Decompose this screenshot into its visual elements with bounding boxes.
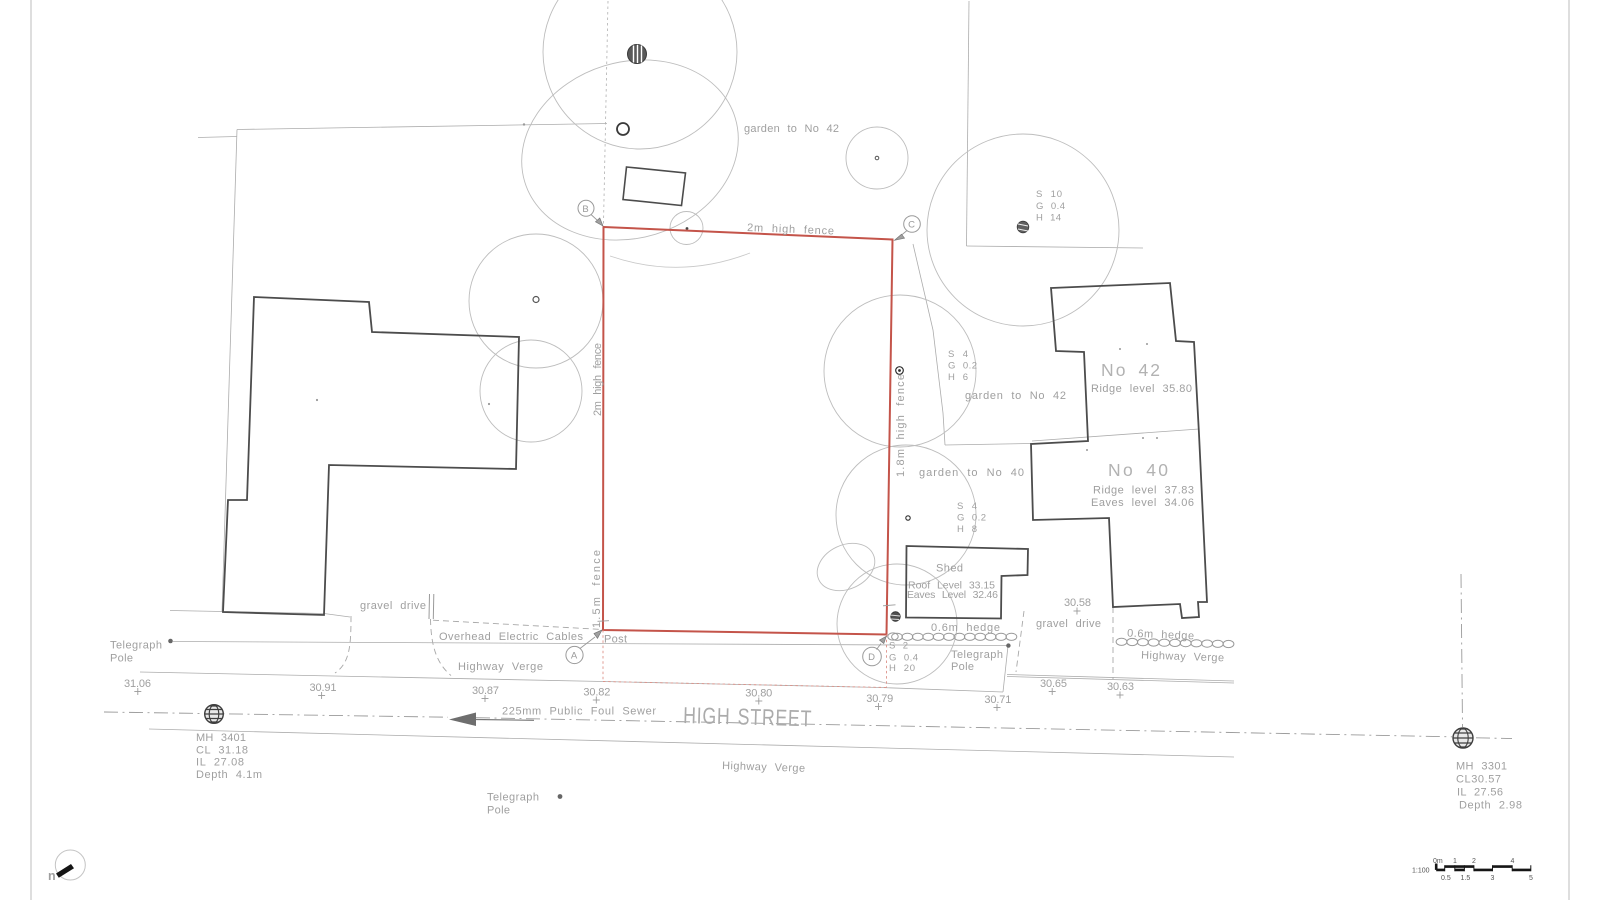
svg-text:30.65: 30.65 (1040, 678, 1068, 690)
svg-text:30.91: 30.91 (310, 682, 338, 694)
svg-text:G 0.2: G 0.2 (957, 513, 987, 524)
svg-text:0.5: 0.5 (1441, 875, 1451, 882)
svg-text:B: B (582, 204, 589, 215)
svg-text:0m: 0m (1433, 858, 1443, 865)
svg-text:CL30.57: CL30.57 (1456, 774, 1502, 786)
svg-text:garden to No 42: garden to No 42 (965, 390, 1067, 402)
svg-text:Overhead Electric Cables: Overhead Electric Cables (439, 631, 584, 643)
svg-text:30.87: 30.87 (472, 685, 500, 697)
svg-text:Pole: Pole (951, 661, 975, 673)
svg-text:1.5m fence: 1.5m fence (591, 549, 603, 628)
svg-text:Pole: Pole (110, 653, 134, 665)
svg-text:IL 27.56: IL 27.56 (1457, 787, 1504, 799)
svg-text:S 4: S 4 (948, 349, 969, 360)
svg-text:Post: Post (604, 634, 628, 646)
svg-text:gravel drive: gravel drive (360, 600, 427, 612)
svg-text:Eaves Level 32.46: Eaves Level 32.46 (907, 589, 999, 601)
svg-text:Telegraph: Telegraph (951, 649, 1004, 661)
svg-text:Shed: Shed (936, 563, 964, 575)
svg-text:Eaves level 34.06: Eaves level 34.06 (1091, 497, 1195, 509)
svg-text:1.5: 1.5 (1461, 875, 1471, 882)
svg-text:S 10: S 10 (1036, 189, 1063, 200)
svg-text:H 20: H 20 (889, 663, 916, 674)
svg-text:30.58: 30.58 (1064, 597, 1092, 609)
svg-text:4: 4 (1511, 858, 1515, 865)
svg-text:5: 5 (1529, 875, 1533, 882)
svg-text:G 0.2: G 0.2 (948, 361, 978, 372)
svg-text:H 8: H 8 (957, 524, 978, 535)
svg-text:IL 27.08: IL 27.08 (196, 757, 245, 769)
svg-text:S 2: S 2 (889, 641, 909, 652)
svg-text:Ridge level 37.83: Ridge level 37.83 (1093, 485, 1195, 497)
svg-text:garden to No 40: garden to No 40 (919, 467, 1025, 479)
svg-text:H 6: H 6 (948, 372, 969, 383)
svg-text:S 4: S 4 (957, 501, 978, 512)
svg-text:No 40: No 40 (1108, 460, 1170, 480)
svg-text:30.80: 30.80 (745, 688, 773, 700)
svg-text:MH 3301: MH 3301 (1456, 761, 1508, 773)
svg-text:Telegraph: Telegraph (487, 792, 540, 804)
svg-text:CL 31.18: CL 31.18 (196, 745, 249, 757)
svg-text:1.8m high fence: 1.8m high fence (895, 373, 907, 477)
svg-text:0.6m hedge: 0.6m hedge (931, 622, 1001, 634)
svg-text:30.79: 30.79 (866, 693, 894, 705)
svg-text:G 0.4: G 0.4 (889, 653, 919, 664)
svg-text:Pole: Pole (487, 805, 511, 817)
svg-text:Depth 4.1m: Depth 4.1m (196, 769, 263, 781)
svg-text:30.71: 30.71 (984, 694, 1012, 706)
svg-text:Highway Verge: Highway Verge (458, 661, 544, 673)
svg-text:D: D (868, 652, 876, 663)
svg-text:garden to No 42: garden to No 42 (744, 123, 840, 135)
svg-text:C: C (908, 220, 916, 231)
svg-text:1: 1 (1453, 858, 1457, 865)
svg-text:30.63: 30.63 (1107, 681, 1135, 693)
svg-text:MH 3401: MH 3401 (196, 732, 247, 744)
svg-text:G 0.4: G 0.4 (1036, 201, 1066, 212)
svg-text:Ridge level 35.80: Ridge level 35.80 (1091, 383, 1193, 395)
svg-text:3: 3 (1491, 875, 1495, 882)
svg-text:gravel drive: gravel drive (1036, 618, 1102, 630)
svg-text:2: 2 (1472, 858, 1476, 865)
svg-text:Depth 2.98: Depth 2.98 (1459, 800, 1523, 812)
svg-text:30.82: 30.82 (583, 687, 611, 699)
svg-text:2m high fence: 2m high fence (592, 342, 604, 416)
svg-text:A: A (571, 651, 578, 662)
svg-text:Telegraph: Telegraph (110, 640, 163, 652)
svg-text:HIGH STREET: HIGH STREET (683, 703, 813, 732)
svg-text:1:100: 1:100 (1412, 868, 1430, 875)
svg-text:225mm Public Foul Sewer: 225mm Public Foul Sewer (502, 706, 657, 718)
svg-text:H 14: H 14 (1036, 213, 1062, 224)
svg-text:No 42: No 42 (1101, 360, 1162, 380)
svg-text:n: n (48, 869, 57, 883)
